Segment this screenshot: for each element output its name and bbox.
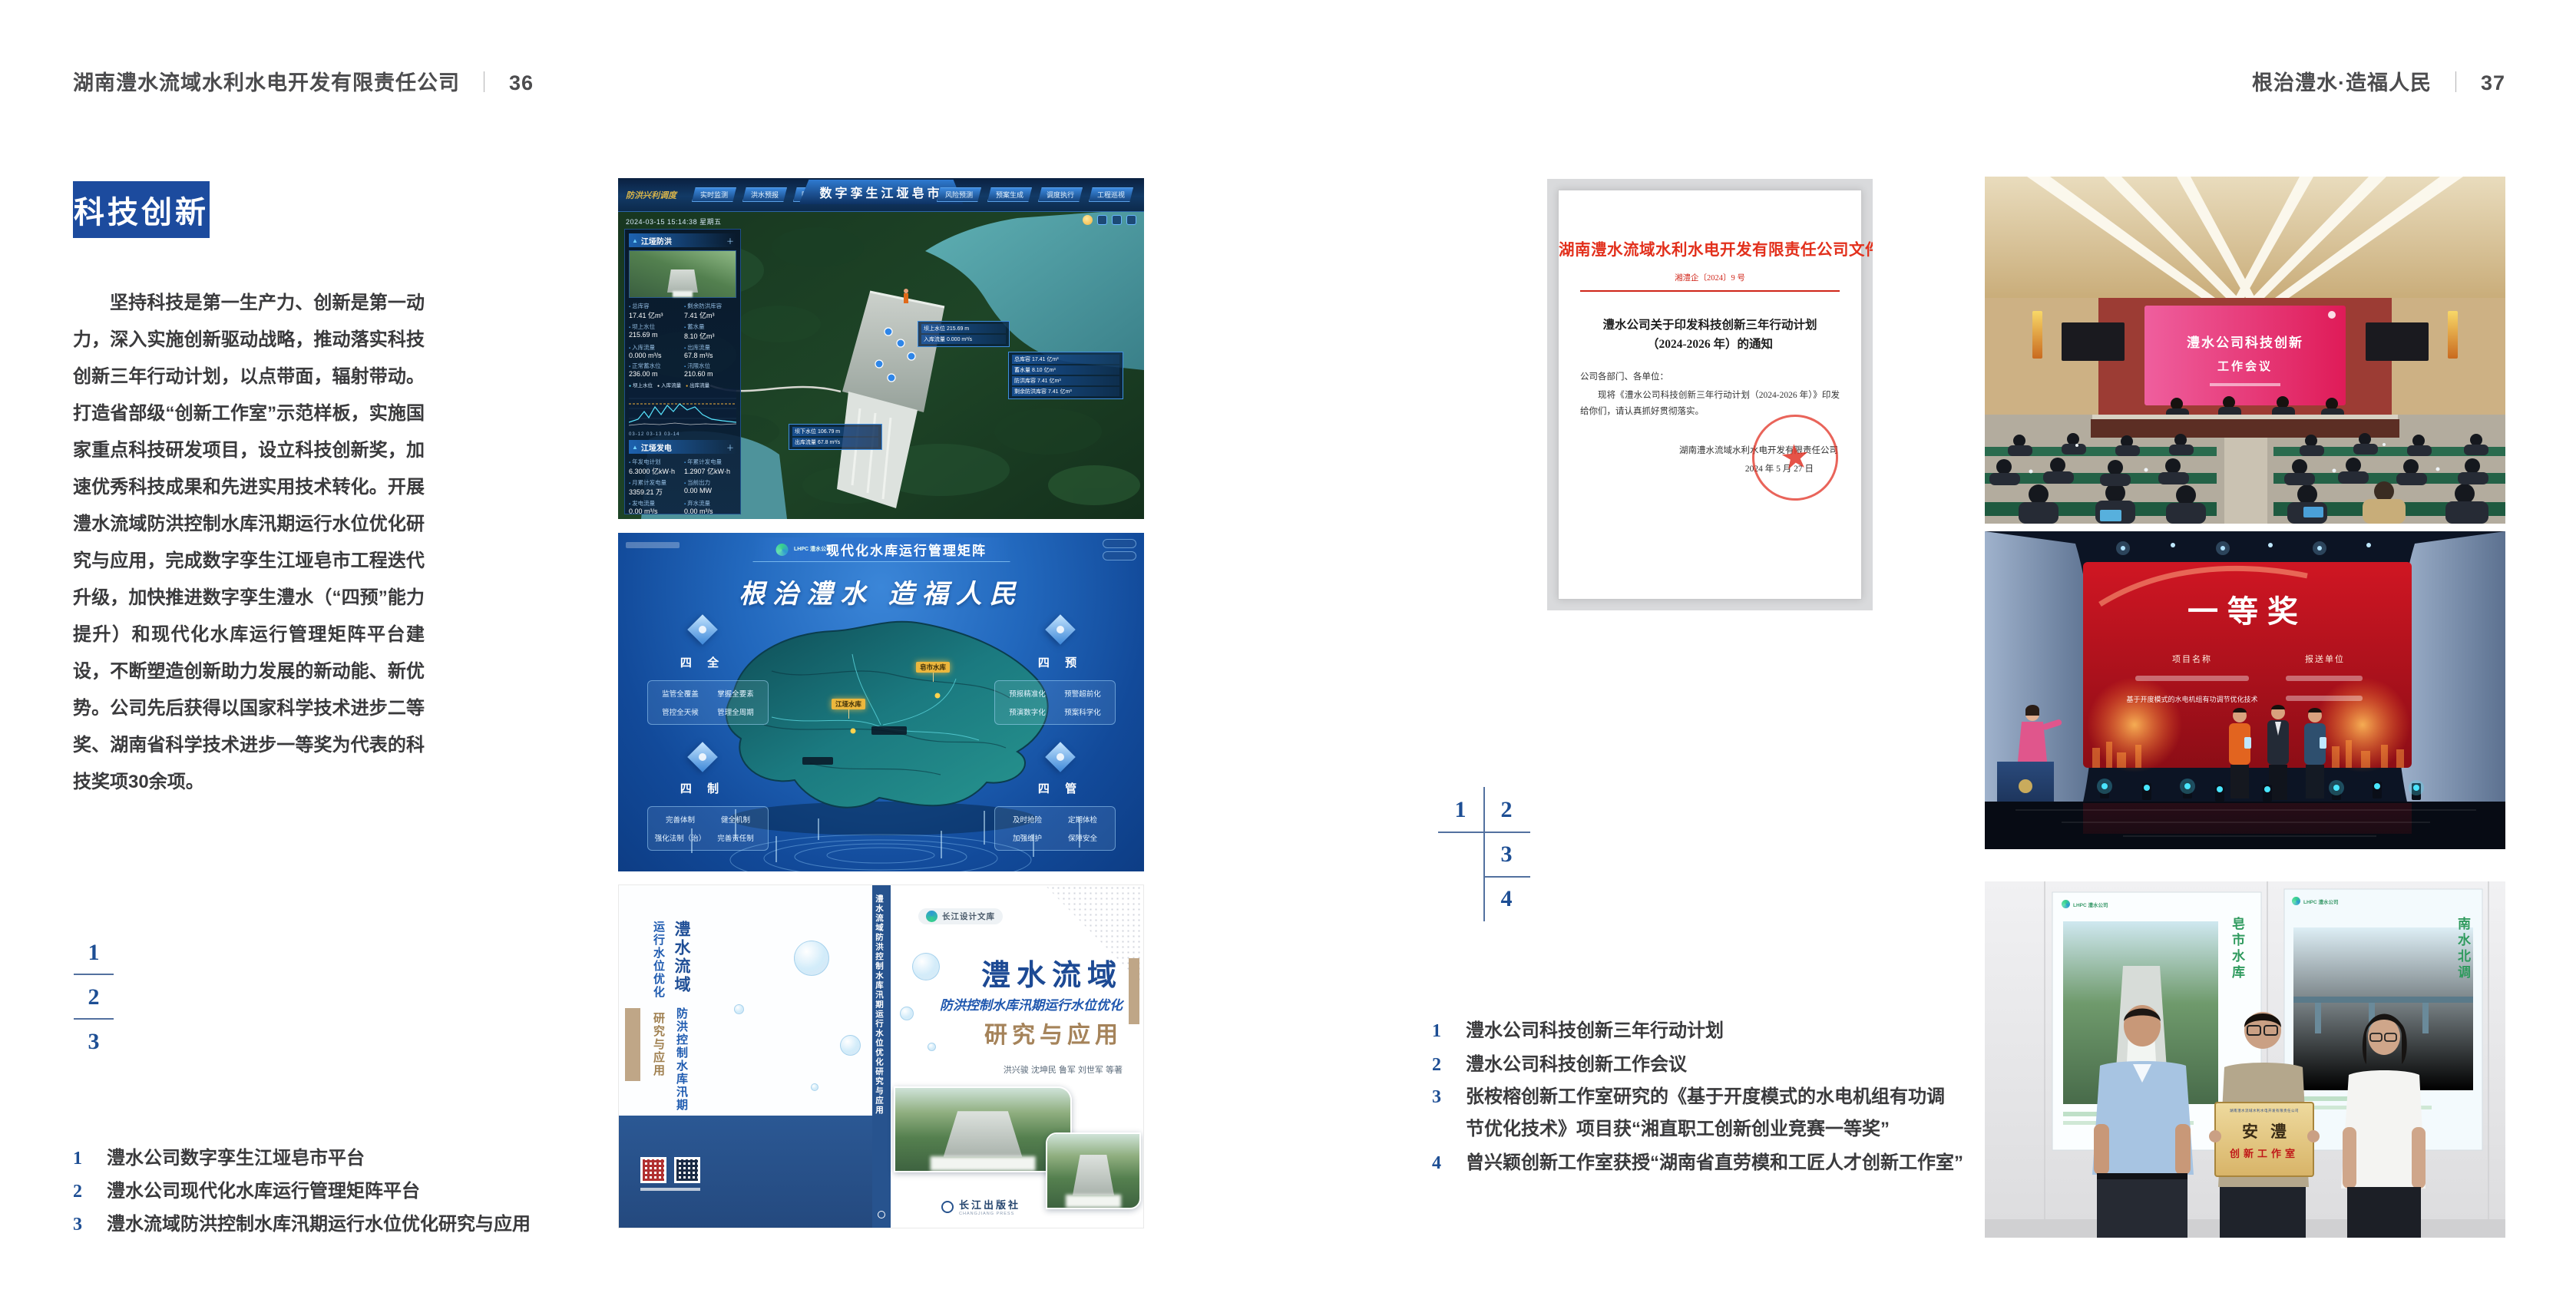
figure-locator-number: 1 [80, 940, 107, 966]
lhpc-logo-text: LHPC 澧水公司 [2073, 901, 2108, 908]
floor-reflection [2083, 803, 2412, 834]
caption-text: 澧水公司现代化水库运行管理矩阵平台 [107, 1175, 420, 1208]
water-droplet [840, 1035, 861, 1056]
tag-row: 防洪库容 7.41 亿m³ [1012, 376, 1119, 385]
stat-cell: 坝上水位215.69 m [629, 322, 681, 341]
figure-workshop-photo: LHPC 澧水公司 LHPC 澧水公司 皂市水库 南水北调 湖南澧水流域水利水电… [1985, 881, 2505, 1238]
panel-item: 管理全周期 [709, 706, 762, 717]
seal-star-icon: ★ [1778, 439, 1812, 476]
stat-value: 236.00 m [629, 370, 681, 378]
ripples [730, 835, 1031, 871]
lhpc-logo-text: LHPC 澧水公司 [794, 547, 820, 553]
caption-text: 澧水公司科技创新三年行动计划 [1466, 1015, 1724, 1047]
water-droplet [811, 1083, 818, 1091]
stat-cell: 入库流量0.000 m³/s [629, 343, 681, 359]
stat-cell: 正常蓄水位236.00 m [629, 362, 681, 378]
plaque-subtitle: 创新工作室 [2217, 1146, 2312, 1160]
power-stats-grid: 年发电计划6.3000 亿kW·h 年累计发电量1.2907 亿kW·h 月累计… [629, 458, 736, 514]
panel-title: 江垭发电 [641, 441, 672, 453]
red-rule [1580, 290, 1840, 292]
caption-text: 澧水公司数字孪生江垭皂市平台 [107, 1142, 365, 1175]
figure-award-photo: 一等奖 项目名称 报送单位 基于开度模式的水电机组有功调节优化技术 [1985, 531, 2505, 849]
panel-icon: ▲ [632, 237, 638, 244]
tag-row: 出库流量 67.8 m³/s [792, 438, 878, 447]
locate-icon[interactable] [1112, 215, 1122, 225]
slogan-title: 根治澧水·造福人民 [2252, 71, 2432, 94]
caption-row: 3 张桉榕创新工作室研究的《基于开度模式的水电机组有功调节优化技术》项目获“湘直… [1432, 1081, 1962, 1146]
poster-calligraphy-left: 皂市水库 [2227, 917, 2247, 981]
header-separator: ｜ [474, 71, 495, 94]
panel-box-yu: 预报精准化 预警超前化 预演数字化 预案科学化 [994, 680, 1116, 725]
panel-item: 预演数字化 [1001, 706, 1053, 717]
panel-title: 江垭防洪 [641, 235, 672, 246]
dashboard-topbar: 防洪兴利调度 实时监测 洪水预报 防洪预警 数字孪生江垭皂市 风险预测 预案生成… [618, 178, 1144, 212]
salutation: 公司各部门、各单位： [1580, 370, 1668, 382]
rostrum-table [2091, 419, 2399, 439]
tag-row: 剩余防洪库容 7.41 亿m³ [1012, 387, 1119, 396]
award-row-bar [2286, 676, 2363, 681]
panel-item: 监管全覆盖 [654, 688, 706, 699]
company-name: 湖南澧水流域水利水电开发有限责任公司 [73, 71, 460, 94]
stat-label: 发电流量 [629, 499, 681, 508]
meeting-title-line1: 澧水公司科技创新 [2144, 332, 2346, 351]
panel-title: 四 全 [641, 654, 764, 670]
book-subtitle: 防洪控制水库汛期运行水位优化 [895, 994, 1123, 1013]
caption-number: 2 [1432, 1049, 1450, 1081]
stat-value: 7.41 亿m³ [684, 310, 736, 320]
back-bottom-band [619, 1116, 891, 1228]
stat-value: 8.10 亿m³ [684, 331, 736, 341]
matrix-header: LHPC 澧水公司 现代化水库运行管理矩阵 [752, 537, 1010, 562]
poster-calligraphy-right: 南水北调 [2453, 917, 2472, 981]
stat-value: 3359.21 万 [629, 487, 681, 497]
flag-figure [904, 289, 908, 303]
figure-official-document: 湖南澧水流域水利水电开发有限责任公司文件 湘澧企〔2024〕9 号 澧水公司关于… [1547, 179, 1873, 610]
panel-box-zhi: 完善体制 健全机制 强化法制（治） 完善责任制 [647, 806, 769, 851]
chart-x-axis: 03-12 03-13 03-14 [629, 432, 736, 437]
meeting-title-line2: 工作会议 [2144, 358, 2346, 374]
header-separator: ｜ [2445, 71, 2467, 94]
stat-cell: 年发电计划6.3000 亿kW·h [629, 458, 681, 476]
left-data-panel: ▲江垭防洪＋ 总库容17.41 亿m³ 剩余防洪库容7.41 亿m³ 坝上水位2… [624, 229, 741, 514]
tab-realtime-monitor[interactable]: 实时监测 [692, 187, 736, 202]
publisher-logo-icon [941, 1201, 954, 1213]
panel-item: 预案科学化 [1057, 706, 1109, 717]
thumb-spray [673, 291, 693, 297]
stat-label: 汛限水位 [684, 362, 736, 370]
stat-cell: 弃水流量0.00 m³/s [684, 499, 736, 514]
expand-icon[interactable]: ＋ [726, 235, 736, 246]
panel-item: 加强维护 [1001, 832, 1053, 843]
lhpc-logo-icon [2292, 897, 2300, 905]
stat-cell: 剩余防洪库容7.41 亿m³ [684, 302, 736, 320]
figure-locator-number: 3 [1493, 841, 1520, 868]
stat-value: 6.3000 亿kW·h [629, 466, 681, 476]
page-number-left: 36 [509, 71, 534, 94]
panel-header-power: ▲江垭发电＋ [629, 440, 736, 454]
chart-plot [629, 388, 736, 428]
date-bar [626, 542, 680, 548]
toolbar-icons [1083, 215, 1136, 225]
screen-glow-left [2087, 677, 2182, 772]
notice-title-line1: 澧水公司关于印发科技创新三年行动计划 [1559, 316, 1861, 332]
stat-value: 0.00 m³/s [629, 508, 681, 514]
panel-item: 定期体检 [1057, 814, 1109, 825]
plaque-org-line: 湖南澧水流域水利水电开发有限责任公司 [2217, 1109, 2312, 1113]
wall-tv-right [2366, 322, 2429, 361]
figure-locator-number: 4 [1493, 886, 1520, 912]
document-number: 湘澧企〔2024〕9 号 [1559, 272, 1861, 283]
tab-flood-forecast[interactable]: 洪水预报 [742, 187, 787, 202]
locator-line [1438, 832, 1530, 833]
stat-label: 当前出力 [684, 478, 736, 487]
stat-value: 0.00 MW [684, 487, 736, 494]
map-marker-zaoshi[interactable]: 皂市水库 [916, 662, 950, 673]
caption-row: 1 澧水公司数字孪生江垭皂市平台 [73, 1142, 365, 1175]
locator-line [1483, 876, 1530, 878]
stat-label: 坝上水位 [629, 322, 681, 331]
tab-dispatch-execution[interactable]: 调度执行 [1038, 187, 1083, 202]
qr-code-red [640, 1157, 666, 1183]
tag-row: 总库容 17.41 亿m³ [1012, 355, 1119, 364]
panel-title: 四 预 [999, 654, 1122, 670]
screen-text: 澧水公司科技创新 工作会议 [2144, 332, 2346, 386]
stat-cell: 发电流量0.00 m³/s [629, 499, 681, 514]
panel-title: 四 管 [999, 780, 1122, 796]
panel-item: 保障安全 [1057, 832, 1109, 843]
award-scene [1985, 531, 2505, 849]
figure-matrix-platform: LHPC 澧水公司 现代化水库运行管理矩阵 根治澧水 造福人民 四 全 监管全覆… [618, 533, 1144, 871]
back-tan-block [625, 1008, 640, 1081]
panel-item: 健全机制 [709, 814, 762, 825]
award-col-project: 项目名称 [2138, 653, 2246, 665]
award-row-bar [2135, 676, 2249, 681]
stat-label: 剩余防洪库容 [684, 302, 736, 310]
wall-lamp-left [2032, 311, 2042, 359]
caption-number: 3 [1432, 1081, 1450, 1146]
panel-item: 掌握全要素 [709, 688, 762, 699]
topright-button[interactable] [1103, 551, 1136, 560]
caption-row: 4 曾兴颖创新工作室获授“湖南省直劳模和工匠人才创新工作室” [1432, 1147, 1963, 1179]
figure-meeting-photo: 澧水公司科技创新 工作会议 [1985, 177, 2505, 524]
legend-item: 入库流量 [657, 381, 681, 388]
stat-value: 215.69 m [629, 331, 681, 339]
map-minitag [802, 757, 833, 765]
award-row-bar [2286, 696, 2363, 701]
stage-side-right [2396, 531, 2505, 849]
poster-logo-right: LHPC 澧水公司 [2292, 897, 2339, 905]
caption-row: 2 澧水公司科技创新工作会议 [1432, 1049, 1687, 1081]
panel-item: 及时抢险 [1001, 814, 1053, 825]
truss-lights [2116, 541, 2371, 555]
caption-row: 2 澧水公司现代化水库运行管理矩阵平台 [73, 1175, 420, 1208]
caption-text: 澧水流域防洪控制水库汛期运行水位优化研究与应用 [107, 1208, 531, 1241]
front-tan-bar [1129, 958, 1139, 1024]
tag-row: 蓄水量 8.10 亿m³ [1012, 365, 1119, 375]
screen-logo-dot [2328, 311, 2336, 319]
locator-line [1483, 787, 1485, 921]
qr-code [674, 1157, 700, 1183]
qr-caption-line [640, 1188, 700, 1191]
poster-logo-left: LHPC 澧水公司 [2062, 900, 2108, 908]
stat-value: 67.8 m³/s [684, 352, 736, 359]
stat-label: 弃水流量 [684, 499, 736, 508]
spine-publisher-mark [878, 1211, 885, 1218]
wall-tv-left [2062, 322, 2125, 361]
layers-icon[interactable] [1097, 215, 1107, 225]
topright-button[interactable] [1103, 539, 1136, 548]
panel-item: 预警超前化 [1057, 688, 1109, 699]
locator-line [74, 1018, 114, 1020]
map-minitag [871, 726, 907, 735]
lhpc-logo-icon [775, 544, 788, 556]
stat-label: 年发电计划 [629, 458, 681, 466]
back-title-main: 澧水流域 [673, 921, 690, 994]
wall-lamp-right [2448, 311, 2458, 359]
weather-icon[interactable] [1083, 215, 1093, 225]
panel-box-guan: 及时抢险 定期体检 加强维护 保障安全 [994, 806, 1116, 851]
award-title: 一等奖 [2083, 587, 2412, 631]
panel-title: 四 制 [641, 780, 764, 796]
panel-icon: ▲ [632, 444, 638, 451]
stat-cell: 出库流量67.8 m³/s [684, 343, 736, 359]
water-droplet [734, 1004, 744, 1014]
authors-line: 洪兴骏 沈坤民 鲁军 刘世军 等著 [911, 1063, 1123, 1076]
stat-value: 0.000 m³/s [629, 352, 681, 359]
lhpc-logo-icon [2062, 900, 2070, 908]
stage-light-fixtures [2097, 779, 2424, 802]
tag-row: 坝上水位 215.69 m [921, 324, 1006, 333]
publisher-block: 长江出版社 CHANGJIANG PRESS [941, 1197, 1020, 1216]
panel-item: 预报精准化 [1001, 688, 1053, 699]
map-marker-jiangya[interactable]: 江垭水库 [832, 699, 865, 709]
thumb-dam [667, 269, 698, 293]
book-front-cover: 长江设计文库 澧水流域 防洪控制水库汛期运行水位优化 研究与应用 洪兴骏 沈坤民… [891, 885, 1144, 1228]
book-title: 澧水流域 [911, 951, 1123, 994]
lhpc-logo-text: LHPC 澧水公司 [2303, 898, 2339, 905]
stat-label: 蓄水量 [684, 322, 736, 331]
book-subtitle2: 研究与应用 [911, 1016, 1123, 1050]
locator-line [74, 974, 114, 975]
caption-row: 3 澧水流域防洪控制水库汛期运行水位优化研究与应用 [73, 1208, 531, 1241]
award-project-name: 基于开度模式的水电机组有功调节优化技术 [2100, 694, 2284, 704]
map-tag-downstream: 坝下水位 106.79 m 出库流量 67.8 m³/s [789, 424, 882, 450]
stat-label: 入库流量 [629, 343, 681, 352]
tab-risk-forecast[interactable]: 风险预测 [937, 187, 981, 202]
level-flow-chart: 坝上水位 入库流量 出库流量 03-12 03-13 03-14 [629, 381, 736, 437]
document-page: 湖南澧水流域水利水电开发有限责任公司文件 湘澧企〔2024〕9 号 澧水公司关于… [1558, 190, 1862, 600]
panel-item: 完善责任制 [709, 832, 762, 843]
stat-label: 正常蓄水位 [629, 362, 681, 370]
award-col-unit: 报送单位 [2275, 653, 2375, 665]
document-letterhead: 湖南澧水流域水利水电开发有限责任公司文件 [1559, 236, 1861, 260]
map-tag-capacity: 总库容 17.41 亿m³ 蓄水量 8.10 亿m³ 防洪库容 7.41 亿m³… [1008, 352, 1123, 399]
tag-row: 坝下水位 106.79 m [792, 427, 878, 436]
tab-project-inspection[interactable]: 工程巡视 [1089, 187, 1133, 202]
map-tag-upstream: 坝上水位 215.69 m 入库流量 0.000 m³/s [918, 321, 1010, 347]
screen-date-bar [2210, 383, 2280, 386]
caption-number: 1 [1432, 1015, 1450, 1047]
user-icon[interactable] [1126, 215, 1136, 225]
figure-locator-number: 3 [80, 1029, 107, 1055]
header-left: 湖南澧水流域水利水电开发有限责任公司｜36 [73, 66, 534, 96]
stat-label: 总库容 [629, 302, 681, 310]
caption-number: 1 [73, 1142, 91, 1175]
figure-locator-number: 1 [1447, 797, 1474, 823]
caption-number: 3 [73, 1208, 91, 1241]
datetime-label: 2024-03-15 15:14:38 星期五 [626, 217, 722, 226]
stat-cell: 月累计发电量3359.21 万 [629, 478, 681, 497]
dam-thumbnail [629, 250, 736, 298]
stat-label: 月累计发电量 [629, 478, 681, 487]
calligraphy-slogan: 根治澧水 造福人民 [618, 573, 1144, 610]
caption-row: 1 澧水公司科技创新三年行动计划 [1432, 1015, 1724, 1047]
brochure-spread: 湖南澧水流域水利水电开发有限责任公司｜36 根治澧水·造福人民｜37 科技创新 … [0, 0, 2576, 1306]
figure-locator-number: 2 [1493, 797, 1520, 823]
section-title: 科技创新 [73, 181, 210, 238]
official-seal: ★ [1748, 410, 1842, 504]
series-name: 长江设计文库 [942, 911, 995, 922]
stat-value: 1.2907 亿kW·h [684, 466, 736, 476]
chart-legend: 坝上水位 入库流量 出库流量 [629, 381, 736, 388]
body-paragraph: 坚持科技是第一生产力、创新是第一动力，深入实施创新驱动战略，推动落实科技创新三年… [73, 285, 425, 801]
legend-item: 出库流量 [686, 381, 709, 388]
tab-plan-generation[interactable]: 预案生成 [987, 187, 1032, 202]
caption-number: 2 [73, 1175, 91, 1208]
spine-title: 澧水流域防洪控制水库汛期运行水位优化研究与应用 [874, 894, 885, 1148]
figure-digital-twin-platform: 防洪兴利调度 实时监测 洪水预报 防洪预警 数字孪生江垭皂市 风险预测 预案生成… [618, 178, 1144, 519]
figure-book-cover: 澧水流域 防洪控制水库汛期运行水位优化 研究与应用 澧水流域防洪控制水库汛期运行… [618, 884, 1144, 1228]
tag-row: 入库流量 0.000 m³/s [921, 335, 1006, 344]
caption-number: 4 [1432, 1147, 1450, 1179]
stat-label: 出库流量 [684, 343, 736, 352]
water-droplet [794, 941, 829, 976]
publisher-name: 长江出版社 [959, 1197, 1020, 1212]
stat-cell: 年累计发电量1.2907 亿kW·h [684, 458, 736, 476]
stat-cell: 蓄水量8.10 亿m³ [684, 322, 736, 341]
flood-stats-grid: 总库容17.41 亿m³ 剩余防洪库容7.41 亿m³ 坝上水位215.69 m… [629, 302, 736, 378]
panel-item: 完善体制 [654, 814, 706, 825]
stat-value: 0.00 m³/s [684, 508, 736, 514]
caption-text: 张桉榕创新工作室研究的《基于开度模式的水电机组有功调节优化技术》项目获“湘直职工… [1466, 1081, 1957, 1146]
stat-cell: 汛限水位210.60 m [684, 362, 736, 378]
book-spine: 澧水流域防洪控制水库汛期运行水位优化研究与应用 [872, 885, 891, 1228]
panel-item: 管控全天候 [654, 706, 706, 717]
center-aisle [2224, 438, 2267, 524]
stat-cell: 总库容17.41 亿m³ [629, 302, 681, 320]
figure-locator-number: 2 [80, 984, 107, 1010]
map-shadow [729, 802, 1037, 835]
stat-value: 17.41 亿m³ [629, 310, 681, 320]
mode-label: 防洪兴利调度 [626, 189, 676, 201]
stat-value: 210.60 m [684, 370, 736, 378]
stat-cell: 当前出力0.00 MW [684, 478, 736, 497]
panel-box-quan: 监管全覆盖 掌握全要素 管控全天候 管理全周期 [647, 680, 769, 725]
caption-text: 澧水公司科技创新工作会议 [1466, 1049, 1687, 1081]
header-right: 根治澧水·造福人民｜37 [2252, 66, 2505, 96]
back-vertical-title: 澧水流域 防洪控制水库汛期运行水位优化 研究与应用 [646, 921, 693, 1113]
panel-header-flood: ▲江垭防洪＋ [629, 233, 736, 247]
notice-title-line2: （2024-2026 年）的通知 [1559, 335, 1861, 352]
stat-label: 年累计发电量 [684, 458, 736, 466]
back-title-tail: 研究与应用 [652, 1012, 665, 1077]
publisher-name-en: CHANGJIANG PRESS [959, 1212, 1020, 1216]
plaque-title: 安澧 [2217, 1119, 2312, 1142]
expand-icon[interactable]: ＋ [726, 441, 736, 453]
tabs-right: 风险预测 预案生成 调度执行 工程巡视 [937, 187, 1133, 202]
matrix-title: 现代化水库运行管理矩阵 [826, 540, 987, 559]
caption-text: 曾兴颖创新工作室获授“湖南省直劳模和工匠人才创新工作室” [1466, 1147, 1963, 1179]
legend-item: 坝上水位 [629, 381, 653, 388]
page-number-right: 37 [2481, 71, 2505, 94]
dam-photo-small [1046, 1132, 1141, 1209]
series-logo-icon [926, 911, 937, 922]
series-badge: 长江设计文库 [918, 908, 1003, 924]
panel-item: 强化法制（治） [654, 832, 706, 843]
